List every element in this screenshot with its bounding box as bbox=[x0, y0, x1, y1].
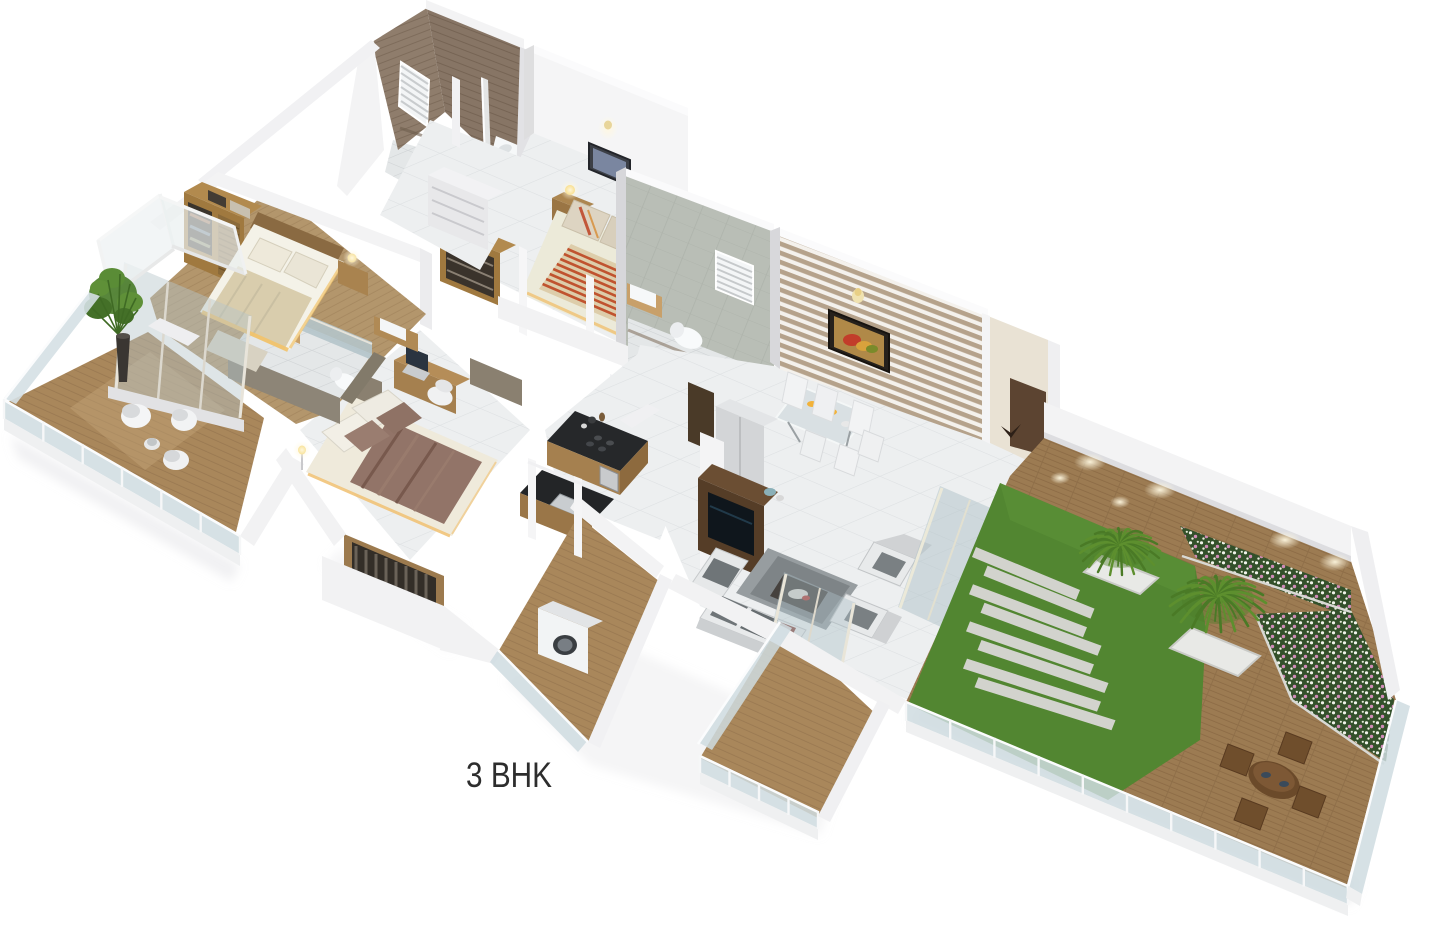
svg-text:3 BHK: 3 BHK bbox=[466, 756, 552, 795]
